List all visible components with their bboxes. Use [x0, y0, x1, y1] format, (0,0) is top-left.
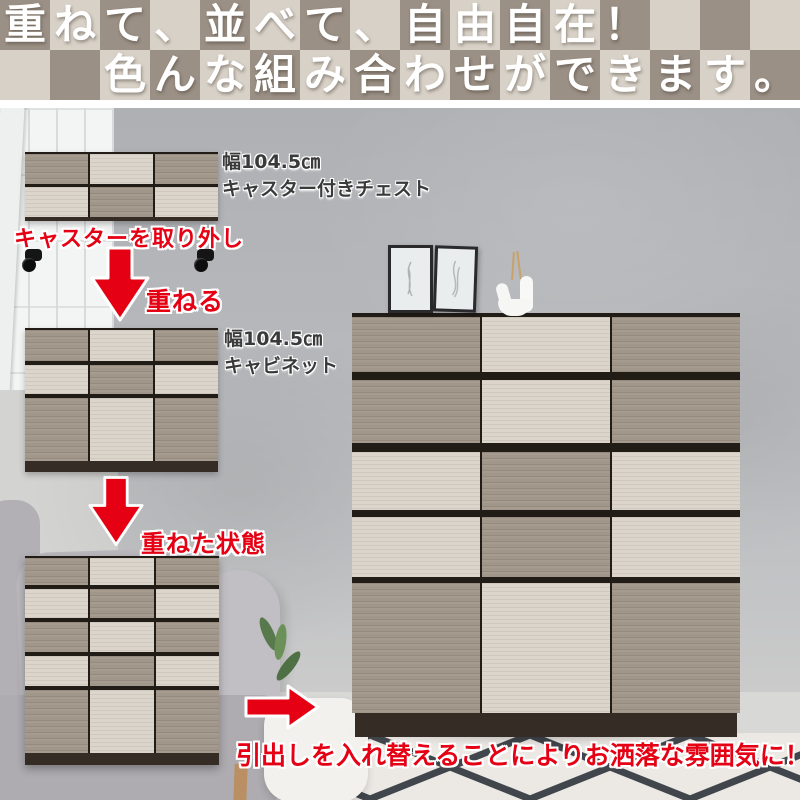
drawer-front-taupe	[25, 154, 88, 184]
promo-image: 重ねて、並べて、自由自在！色んな組み合わせができます。	[0, 0, 800, 800]
row-gap	[352, 443, 740, 452]
drawer-front-taupe	[612, 380, 740, 443]
drawer-front-taupe	[352, 380, 480, 443]
drawer-row	[25, 690, 219, 753]
drawer-front-beige	[352, 517, 480, 577]
drawer-front-taupe	[90, 656, 153, 686]
banner-char: す	[704, 54, 746, 96]
chest-size-label: 幅104.5㎝ キャスター付きチェスト	[222, 149, 431, 203]
row-gap	[352, 510, 740, 517]
banner-cell: 在	[550, 0, 600, 50]
banner-char: 自	[404, 4, 446, 46]
banner-char: 、	[354, 4, 396, 46]
drawer-row	[25, 398, 218, 461]
result-caption: 引出しを入れ替えることによりお洒落な雰囲気に！	[236, 736, 800, 772]
banner-char: ま	[654, 54, 696, 96]
drawer-row	[25, 187, 218, 217]
banner-char: 並	[204, 4, 246, 46]
banner-cell: で	[550, 50, 600, 100]
caster-wheel	[194, 258, 208, 272]
drawer-front-taupe	[90, 187, 153, 217]
drawer-row	[25, 154, 218, 184]
drawer-row	[352, 583, 740, 713]
banner-cell: わ	[400, 50, 450, 100]
banner-cell: ん	[150, 50, 200, 100]
drawer-front-taupe	[25, 558, 88, 585]
banner-char: 。	[754, 54, 796, 96]
banner-char: 合	[354, 54, 396, 96]
chest-with-casters-image	[25, 152, 218, 221]
cabinet-size: 幅104.5㎝	[224, 326, 338, 353]
arrow-down-2-icon	[88, 474, 144, 550]
cabinet-image	[25, 328, 218, 472]
banner-char: 組	[254, 54, 296, 96]
drawer-front-taupe	[612, 583, 740, 713]
drawer-front-taupe	[25, 690, 88, 753]
banner-cell: な	[200, 50, 250, 100]
drawer-row	[25, 365, 218, 394]
drawer-front-taupe	[156, 690, 219, 753]
banner-cell: て	[300, 0, 350, 50]
drawer-row	[352, 452, 740, 510]
caster-left	[22, 249, 46, 275]
banner-char: わ	[404, 54, 446, 96]
drawer-row	[25, 330, 218, 361]
vase-bowl	[498, 299, 531, 316]
drawer-front-taupe	[156, 558, 219, 585]
banner-cell: 自	[400, 0, 450, 50]
drawer-front-beige	[155, 187, 218, 217]
step-stacked-state-label: 重ねた状態	[141, 524, 266, 559]
banner-char: ！	[604, 4, 646, 46]
banner-cell: て	[100, 0, 150, 50]
drawer-front-taupe	[482, 517, 610, 577]
drawer-front-beige	[482, 583, 610, 713]
drawer-front-taupe	[90, 365, 153, 394]
banner-cell: 由	[450, 0, 500, 50]
drawer-row	[25, 589, 219, 618]
drawer-front-beige	[156, 589, 219, 618]
banner-char: せ	[454, 54, 496, 96]
drawer-front-taupe	[90, 589, 153, 618]
banner-cell: 、	[350, 0, 400, 50]
drawer-front-beige	[156, 656, 219, 686]
caster-right	[194, 249, 218, 275]
banner-cell: ね	[50, 0, 100, 50]
drawer-front-beige	[90, 622, 153, 652]
drawer-front-beige	[25, 656, 88, 686]
drawer-front-taupe	[25, 398, 88, 461]
cabinet-size-label: 幅104.5㎝ キャビネット	[224, 326, 338, 380]
banner-char: で	[554, 54, 596, 96]
banner-char: 由	[454, 4, 496, 46]
drawer-front-beige	[155, 365, 218, 394]
drawer-front-taupe	[25, 622, 88, 652]
arrow-down-1-icon	[90, 246, 150, 324]
drawer-front-beige	[352, 452, 480, 510]
drawer-front-beige	[25, 365, 88, 394]
arrow-right-icon	[244, 684, 320, 730]
banner-cell	[750, 0, 800, 50]
drawer-front-taupe	[155, 330, 218, 361]
banner-cell: が	[500, 50, 550, 100]
banner-cell: 組	[250, 50, 300, 100]
banner-char: な	[204, 54, 246, 96]
banner-char: 、	[154, 4, 196, 46]
stacked-chest-image	[25, 556, 219, 765]
banner-cell	[0, 50, 50, 100]
drawer-front-taupe	[352, 583, 480, 713]
drawer-front-taupe	[612, 317, 740, 372]
banner-char: 色	[104, 54, 146, 96]
drawer-front-taupe	[25, 330, 88, 361]
banner-char: て	[304, 4, 346, 46]
banner-cell: せ	[450, 50, 500, 100]
banner-cell: み	[300, 50, 350, 100]
base-plinth	[25, 461, 218, 472]
drawer-front-taupe	[352, 317, 480, 372]
banner-cell	[700, 0, 750, 50]
drawer-row	[352, 380, 740, 443]
drawer-front-taupe	[155, 154, 218, 184]
drawer-front-beige	[90, 558, 153, 585]
banner-cell	[650, 0, 700, 50]
frame-sketch	[436, 248, 475, 309]
drawer-front-taupe	[482, 452, 610, 510]
banner-cell: 並	[200, 0, 250, 50]
banner-cell: 。	[750, 50, 800, 100]
banner-char: て	[104, 4, 146, 46]
picture-frame-left	[388, 245, 433, 313]
drawer-front-beige	[612, 452, 740, 510]
banner-char: き	[604, 54, 646, 96]
banner-cell: 合	[350, 50, 400, 100]
banner-cell: す	[700, 50, 750, 100]
step-stack-label: 重ねる	[146, 282, 224, 318]
frame-sketch	[391, 248, 430, 310]
drawer-row	[25, 622, 219, 652]
drawer-front-beige	[90, 154, 153, 184]
base-plinth	[25, 753, 219, 765]
banner-cell: 色	[100, 50, 150, 100]
drawer-row	[25, 558, 219, 585]
drawer-front-beige	[25, 187, 88, 217]
banner-cell: き	[600, 50, 650, 100]
banner-cell: べ	[250, 0, 300, 50]
banner-char: 在	[554, 4, 596, 46]
base-plinth	[355, 713, 737, 737]
banner-char: み	[304, 54, 346, 96]
drawer-front-taupe	[155, 398, 218, 461]
banner-cell: 、	[150, 0, 200, 50]
drawer-front-beige	[482, 317, 610, 372]
banner-cell: ！	[600, 0, 650, 50]
chest-name: キャスター付きチェスト	[222, 176, 431, 203]
drawer-row	[352, 317, 740, 372]
drawer-front-beige	[90, 330, 153, 361]
large-stacked-cabinet	[352, 313, 740, 737]
caster-wheel	[22, 258, 36, 272]
drawer-row	[25, 656, 219, 686]
banner-char: 自	[504, 4, 546, 46]
drawer-front-beige	[482, 380, 610, 443]
banner-cell: ま	[650, 50, 700, 100]
banner-cell: 重	[0, 0, 50, 50]
drawer-front-beige	[612, 517, 740, 577]
drawer-front-taupe	[156, 622, 219, 652]
banner-char: ん	[154, 54, 196, 96]
banner-char: べ	[254, 4, 296, 46]
picture-frame-right	[433, 245, 478, 312]
banner-char: が	[504, 54, 546, 96]
drawer-front-beige	[25, 589, 88, 618]
banner-char: 重	[4, 4, 46, 46]
chest-size: 幅104.5㎝	[222, 149, 431, 176]
drawer-row	[352, 517, 740, 577]
drawer-front-beige	[90, 690, 153, 753]
vase	[497, 276, 535, 316]
banner-cell	[50, 50, 100, 100]
cabinet-name: キャビネット	[224, 353, 338, 380]
banner-char: ね	[54, 4, 96, 46]
headline-banner: 重ねて、並べて、自由自在！色んな組み合わせができます。	[0, 0, 800, 100]
row-gap	[352, 372, 740, 380]
banner-cell: 自	[500, 0, 550, 50]
drawer-front-beige	[90, 398, 153, 461]
